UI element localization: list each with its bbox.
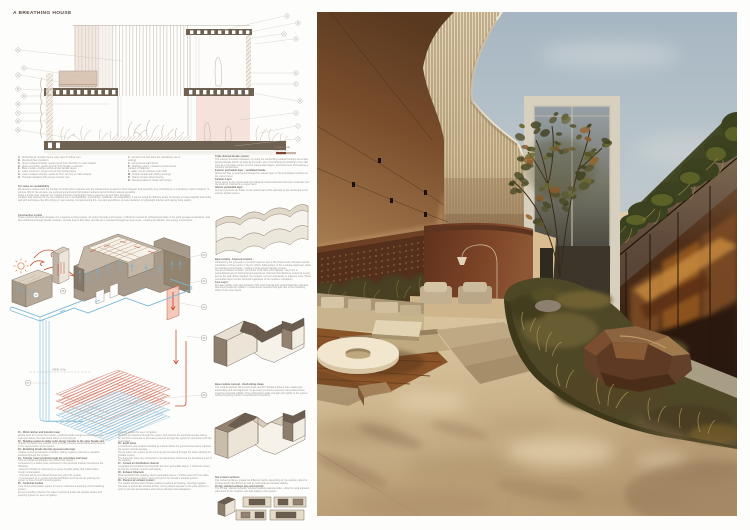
- svg-text:G: G: [295, 38, 297, 41]
- svg-text:C: C: [23, 67, 25, 70]
- svg-text:GRND -4.5m: GRND -4.5m: [52, 369, 66, 372]
- svg-text:0.5m 200 cm: 0.5m 200 cm: [274, 150, 287, 152]
- svg-text:H: H: [299, 100, 301, 103]
- svg-text:O: O: [17, 49, 19, 52]
- svg-text:C: C: [283, 33, 285, 36]
- svg-text:Graphic scale: Graphic scale: [274, 145, 290, 149]
- svg-text:D: D: [23, 95, 25, 98]
- svg-text:M: M: [17, 103, 19, 106]
- svg-text:N: N: [17, 129, 19, 132]
